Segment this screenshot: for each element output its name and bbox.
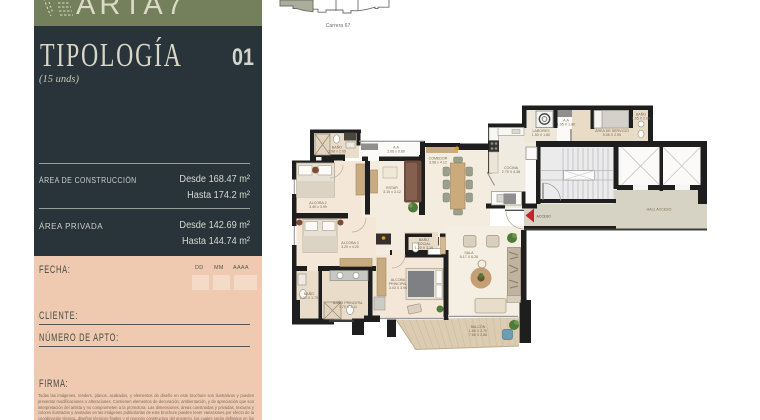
svg-text:1.70 X 3.11: 1.70 X 3.11 xyxy=(339,305,357,309)
svg-text:3.43 X 3.96: 3.43 X 3.96 xyxy=(389,286,407,290)
svg-text:2.75 X 4.38: 2.75 X 4.38 xyxy=(502,170,520,174)
svg-text:1.05 X 1.80: 1.05 X 1.80 xyxy=(557,123,575,127)
svg-text:1.50 X 1.80: 1.50 X 1.80 xyxy=(532,133,550,137)
svg-text:1.05 X 2.06: 1.05 X 2.06 xyxy=(632,117,650,121)
svg-text:5.06 X 2.06: 5.06 X 2.06 xyxy=(603,133,621,137)
svg-text:HALL ACCESO: HALL ACCESO xyxy=(647,208,672,212)
svg-text:ACCESO: ACCESO xyxy=(537,214,552,218)
svg-text:1.20 X 3.10: 1.20 X 3.10 xyxy=(415,246,433,250)
svg-text:3.96 x 4.12: 3.96 x 4.12 xyxy=(429,161,447,165)
svg-text:2.00 X 1.70: 2.00 X 1.70 xyxy=(300,296,318,300)
svg-text:Carrera 67: Carrera 67 xyxy=(326,23,351,29)
svg-text:3.40 x 3.99: 3.40 x 3.99 xyxy=(309,205,327,209)
svg-text:2.06 x 0.80: 2.06 x 0.80 xyxy=(387,150,405,154)
svg-text:7.66 X 2.66: 7.66 X 2.66 xyxy=(469,333,487,337)
svg-text:3.20 x 4.20: 3.20 x 4.20 xyxy=(341,245,359,249)
svg-text:1.98 x 2.05: 1.98 x 2.05 xyxy=(328,150,346,154)
svg-text:3.10 x 3.12: 3.10 x 3.12 xyxy=(383,190,401,194)
svg-text:6.17 X 6.26: 6.17 X 6.26 xyxy=(460,255,478,259)
